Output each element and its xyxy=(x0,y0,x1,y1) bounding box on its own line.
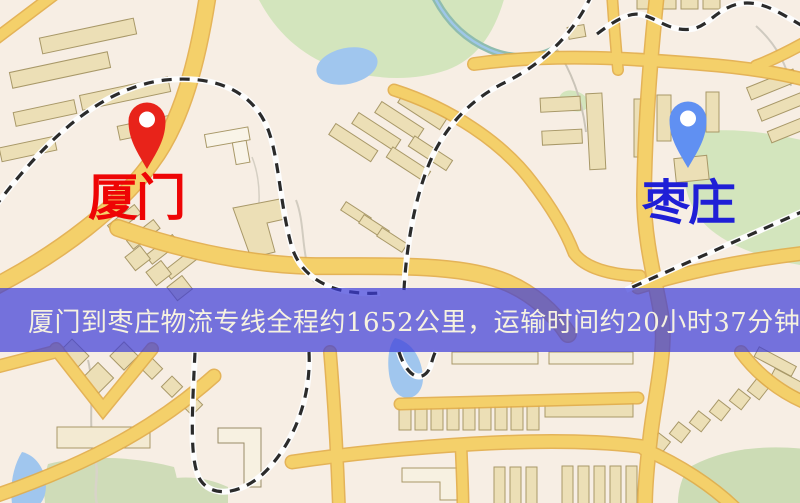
route-info-text: 厦门到枣庄物流专线全程约1652公里，运输时间约20小时37分钟. xyxy=(28,302,800,339)
logistics-route-map: 厦门 枣庄 厦门到枣庄物流专线全程约1652公里，运输时间约20小时37分钟. xyxy=(0,0,800,503)
map-image xyxy=(0,0,800,503)
route-info-banner: 厦门到枣庄物流专线全程约1652公里，运输时间约20小时37分钟. xyxy=(0,288,800,352)
destination-city-label: 枣庄 xyxy=(642,179,734,227)
origin-city-label: 厦门 xyxy=(88,173,184,223)
